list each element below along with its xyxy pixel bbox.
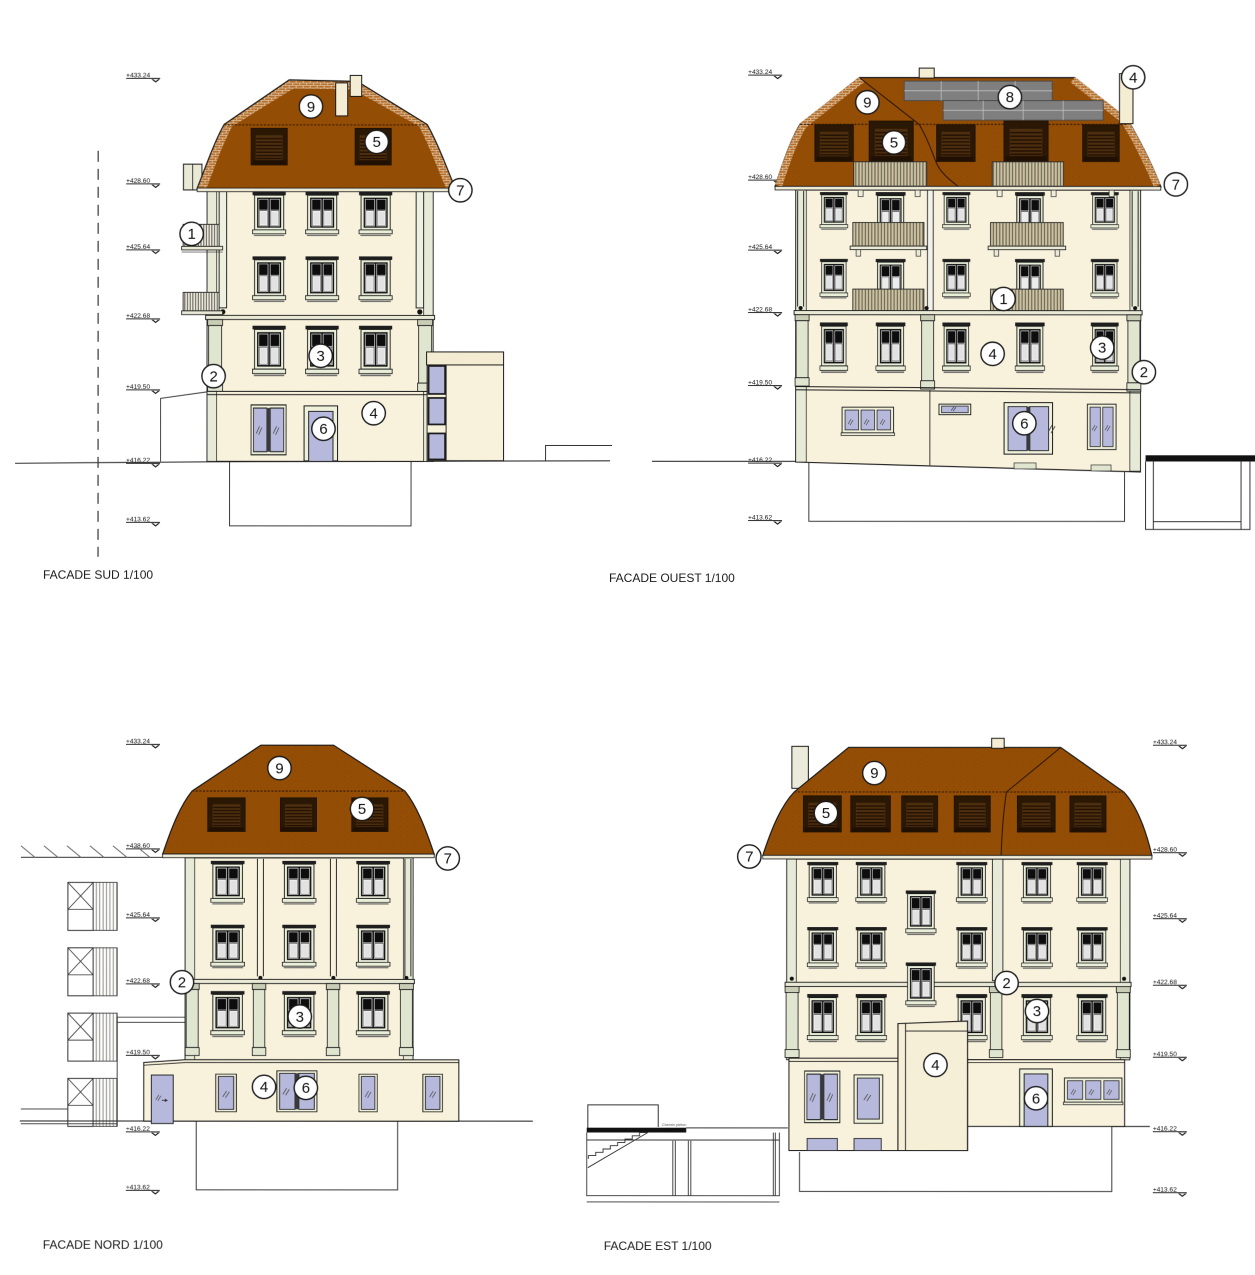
svg-text:9: 9 — [870, 765, 878, 782]
svg-text:9: 9 — [863, 94, 871, 111]
svg-text:5: 5 — [372, 134, 380, 151]
svg-text:1: 1 — [187, 226, 195, 243]
svg-text:4: 4 — [260, 1079, 268, 1096]
svg-text:Chemin piéton: Chemin piéton — [662, 1123, 686, 1127]
svg-text:2: 2 — [178, 974, 186, 991]
svg-text:7: 7 — [456, 182, 464, 199]
svg-text:7: 7 — [745, 849, 753, 866]
svg-text:1: 1 — [999, 291, 1007, 308]
svg-text:FACADE NORD 1/100: FACADE NORD 1/100 — [43, 1238, 163, 1252]
svg-text:4: 4 — [931, 1057, 939, 1074]
svg-text:4: 4 — [1129, 69, 1137, 86]
svg-text:9: 9 — [275, 760, 283, 777]
svg-text:4: 4 — [988, 346, 996, 363]
svg-text:3: 3 — [1098, 340, 1106, 357]
svg-text:6: 6 — [302, 1080, 310, 1097]
svg-text:5: 5 — [358, 801, 366, 818]
svg-text:5: 5 — [822, 805, 830, 822]
svg-text:2: 2 — [209, 368, 217, 385]
svg-text:2: 2 — [1002, 975, 1010, 992]
svg-text:2: 2 — [1140, 364, 1148, 381]
svg-text:7: 7 — [444, 851, 452, 868]
svg-text:3: 3 — [1033, 1003, 1041, 1020]
svg-text:6: 6 — [1032, 1090, 1040, 1107]
svg-text:3: 3 — [296, 1009, 304, 1026]
svg-text:8: 8 — [1006, 89, 1014, 106]
svg-text:6: 6 — [319, 421, 327, 438]
svg-text:3: 3 — [317, 348, 325, 365]
svg-text:FACADE EST 1/100: FACADE EST 1/100 — [604, 1239, 712, 1253]
svg-text:5: 5 — [890, 135, 898, 152]
svg-text:9: 9 — [307, 99, 315, 116]
svg-text:6: 6 — [1020, 415, 1028, 432]
svg-text:7: 7 — [1172, 177, 1180, 194]
svg-text:4: 4 — [370, 405, 378, 422]
svg-text:FACADE OUEST 1/100: FACADE OUEST 1/100 — [609, 571, 735, 585]
svg-text:FACADE SUD 1/100: FACADE SUD 1/100 — [43, 568, 153, 582]
